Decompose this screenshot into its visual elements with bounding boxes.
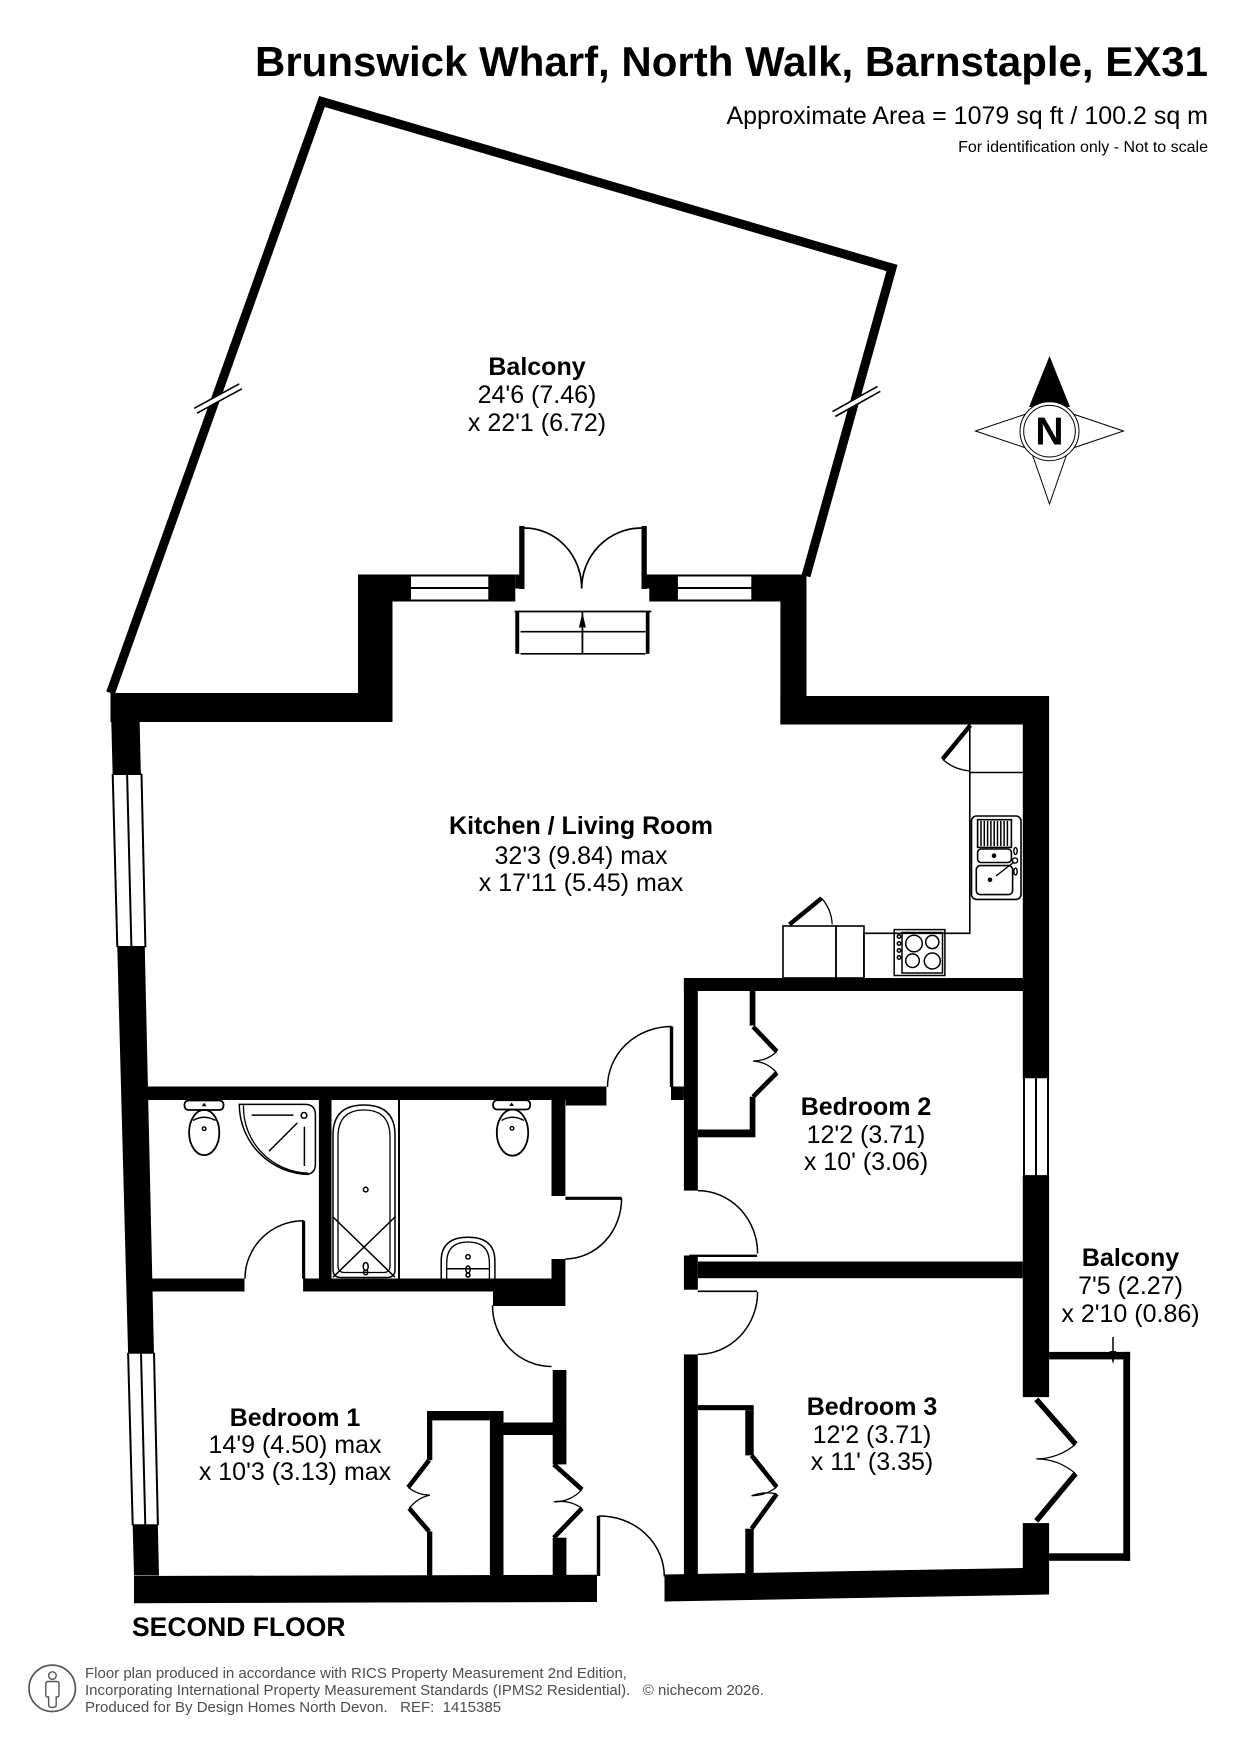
svg-text:32'3 (9.84) max: 32'3 (9.84) max bbox=[495, 842, 668, 870]
svg-text:Produced for By Design Homes N: Produced for By Design Homes North Devon… bbox=[85, 1699, 501, 1716]
svg-text:x 2'10 (0.86): x 2'10 (0.86) bbox=[1061, 1300, 1199, 1328]
svg-text:12'2 (3.71): 12'2 (3.71) bbox=[807, 1121, 926, 1149]
svg-text:14'9 (4.50) max: 14'9 (4.50) max bbox=[209, 1431, 382, 1459]
svg-text:Floor plan produced in accorda: Floor plan produced in accordance with R… bbox=[85, 1665, 627, 1682]
svg-text:24'6 (7.46): 24'6 (7.46) bbox=[478, 381, 597, 409]
svg-text:Brunswick Wharf, North Walk, B: Brunswick Wharf, North Walk, Barnstaple,… bbox=[255, 38, 1208, 85]
svg-text:x 22'1 (6.72): x 22'1 (6.72) bbox=[468, 409, 606, 437]
svg-text:Balcony: Balcony bbox=[1082, 1244, 1179, 1272]
svg-text:Balcony: Balcony bbox=[488, 353, 585, 381]
svg-text:N: N bbox=[1035, 411, 1063, 454]
svg-text:12'2 (3.71): 12'2 (3.71) bbox=[813, 1421, 932, 1449]
svg-text:x 17'11 (5.45) max: x 17'11 (5.45) max bbox=[479, 869, 684, 897]
svg-text:SECOND FLOOR: SECOND FLOOR bbox=[132, 1612, 345, 1642]
svg-text:x 10'3 (3.13) max: x 10'3 (3.13) max bbox=[199, 1458, 392, 1486]
svg-text:For identification only - Not: For identification only - Not to scale bbox=[958, 139, 1208, 156]
svg-text:Bedroom 1: Bedroom 1 bbox=[230, 1404, 361, 1432]
svg-text:Kitchen / Living Room: Kitchen / Living Room bbox=[449, 812, 713, 840]
svg-text:Bedroom 3: Bedroom 3 bbox=[807, 1393, 938, 1421]
svg-text:Approximate Area = 1079 sq ft: Approximate Area = 1079 sq ft / 100.2 sq… bbox=[726, 102, 1208, 130]
svg-text:x 11' (3.35): x 11' (3.35) bbox=[811, 1448, 933, 1476]
svg-text:Incorporating International Pr: Incorporating International Property Mea… bbox=[85, 1682, 764, 1699]
svg-text:Bedroom 2: Bedroom 2 bbox=[801, 1093, 932, 1121]
svg-text:x 10' (3.06): x 10' (3.06) bbox=[804, 1148, 928, 1176]
svg-text:7'5 (2.27): 7'5 (2.27) bbox=[1078, 1272, 1183, 1300]
